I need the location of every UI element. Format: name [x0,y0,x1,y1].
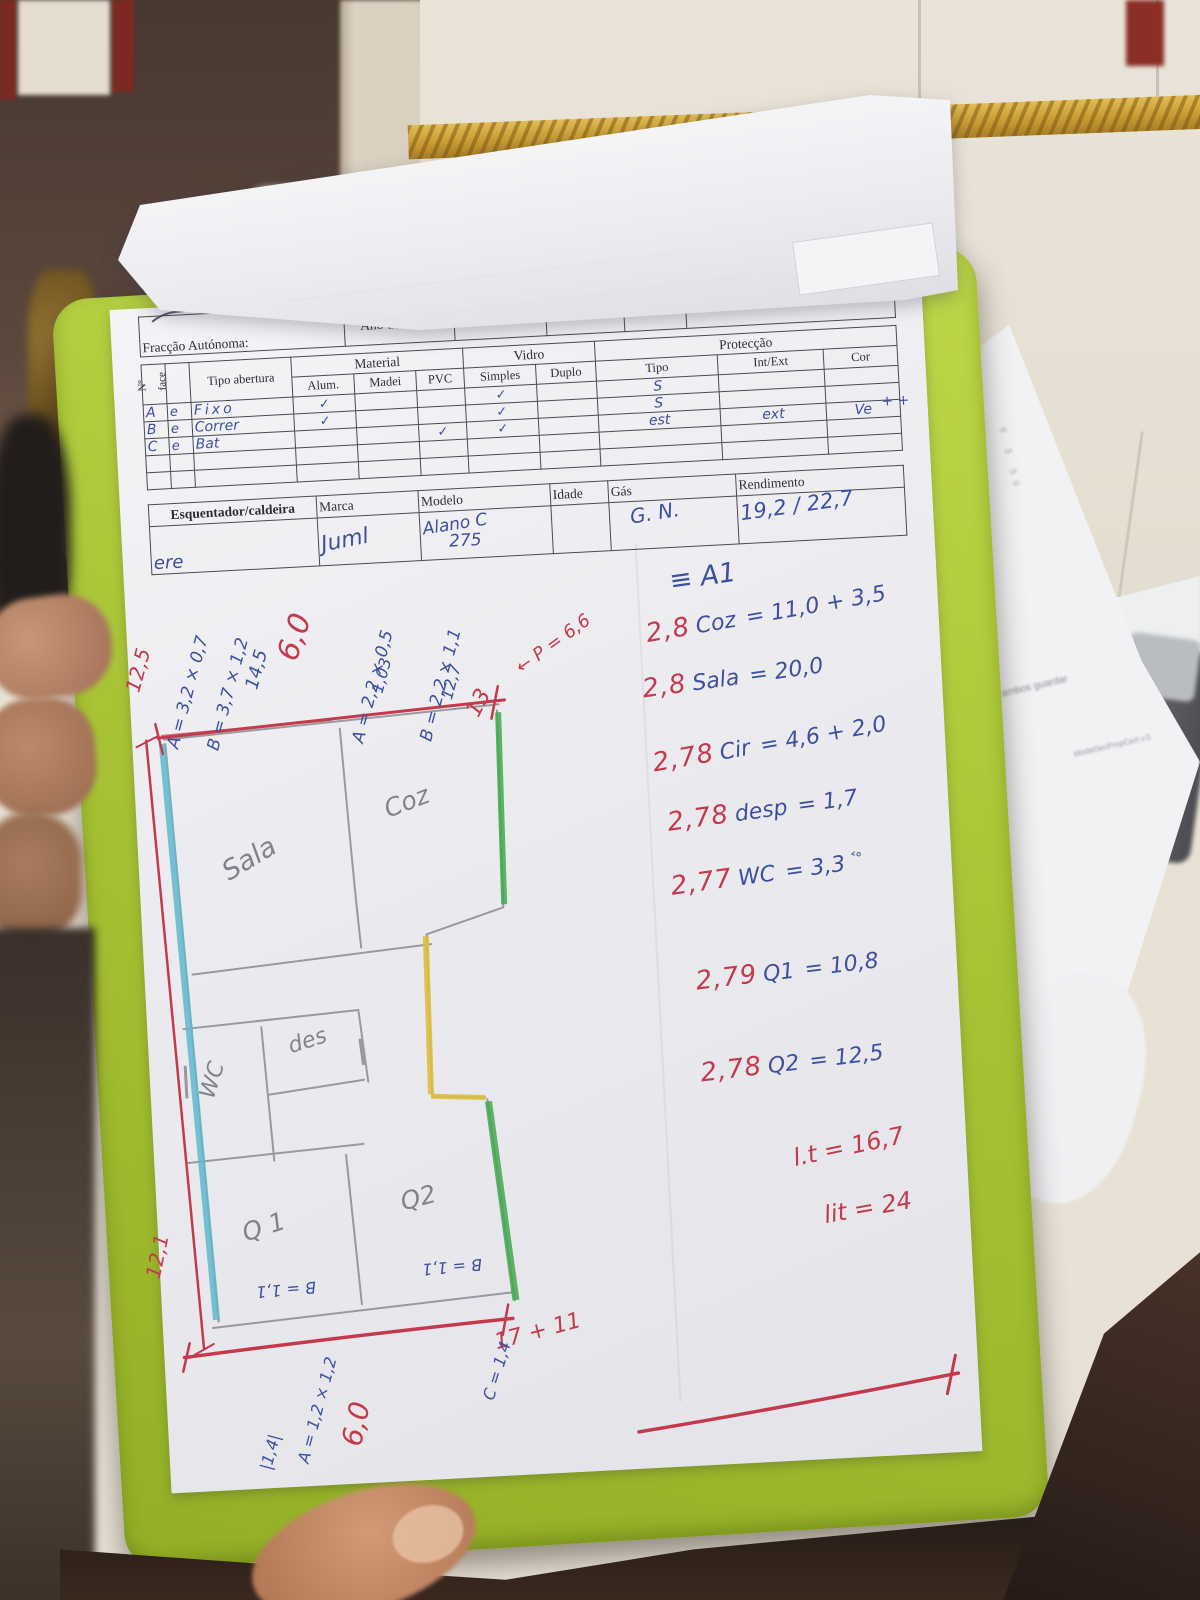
door-frame-strip [0,0,16,100]
room-name: Cir [718,736,752,766]
ghost-label-box [792,222,940,295]
door-frame-strip [112,0,134,92]
room-name: Q1 [762,959,796,988]
survey-paper: Fracção Autónoma: Ano de Const: Altitude… [110,268,983,1494]
wall-light-patch [18,0,110,95]
hand-shadow-area [0,928,95,1600]
ghost-line [252,275,749,338]
height-value: 2,8 [640,669,688,705]
curled-page [100,80,970,350]
sheet-faint-marks: 9 3 50 [998,426,1024,493]
red-object-top-right [1126,0,1164,66]
ghost-line [281,249,698,302]
sheet-print-text: ModeDecPropCert v.5 [1073,732,1152,758]
room-name: Sala [691,665,741,696]
sheet-print-text: ambos guardar [1001,674,1069,700]
room-name: Q2 [767,1051,801,1080]
kitchen-photo-scene: 9 3 50 ambos guardar ModeDecPropCert v.5… [0,0,1200,1600]
curled-page-wrap [100,80,970,350]
room-name: WC [737,861,777,891]
calc-note: ˂° [848,850,864,868]
thumb [0,812,82,940]
